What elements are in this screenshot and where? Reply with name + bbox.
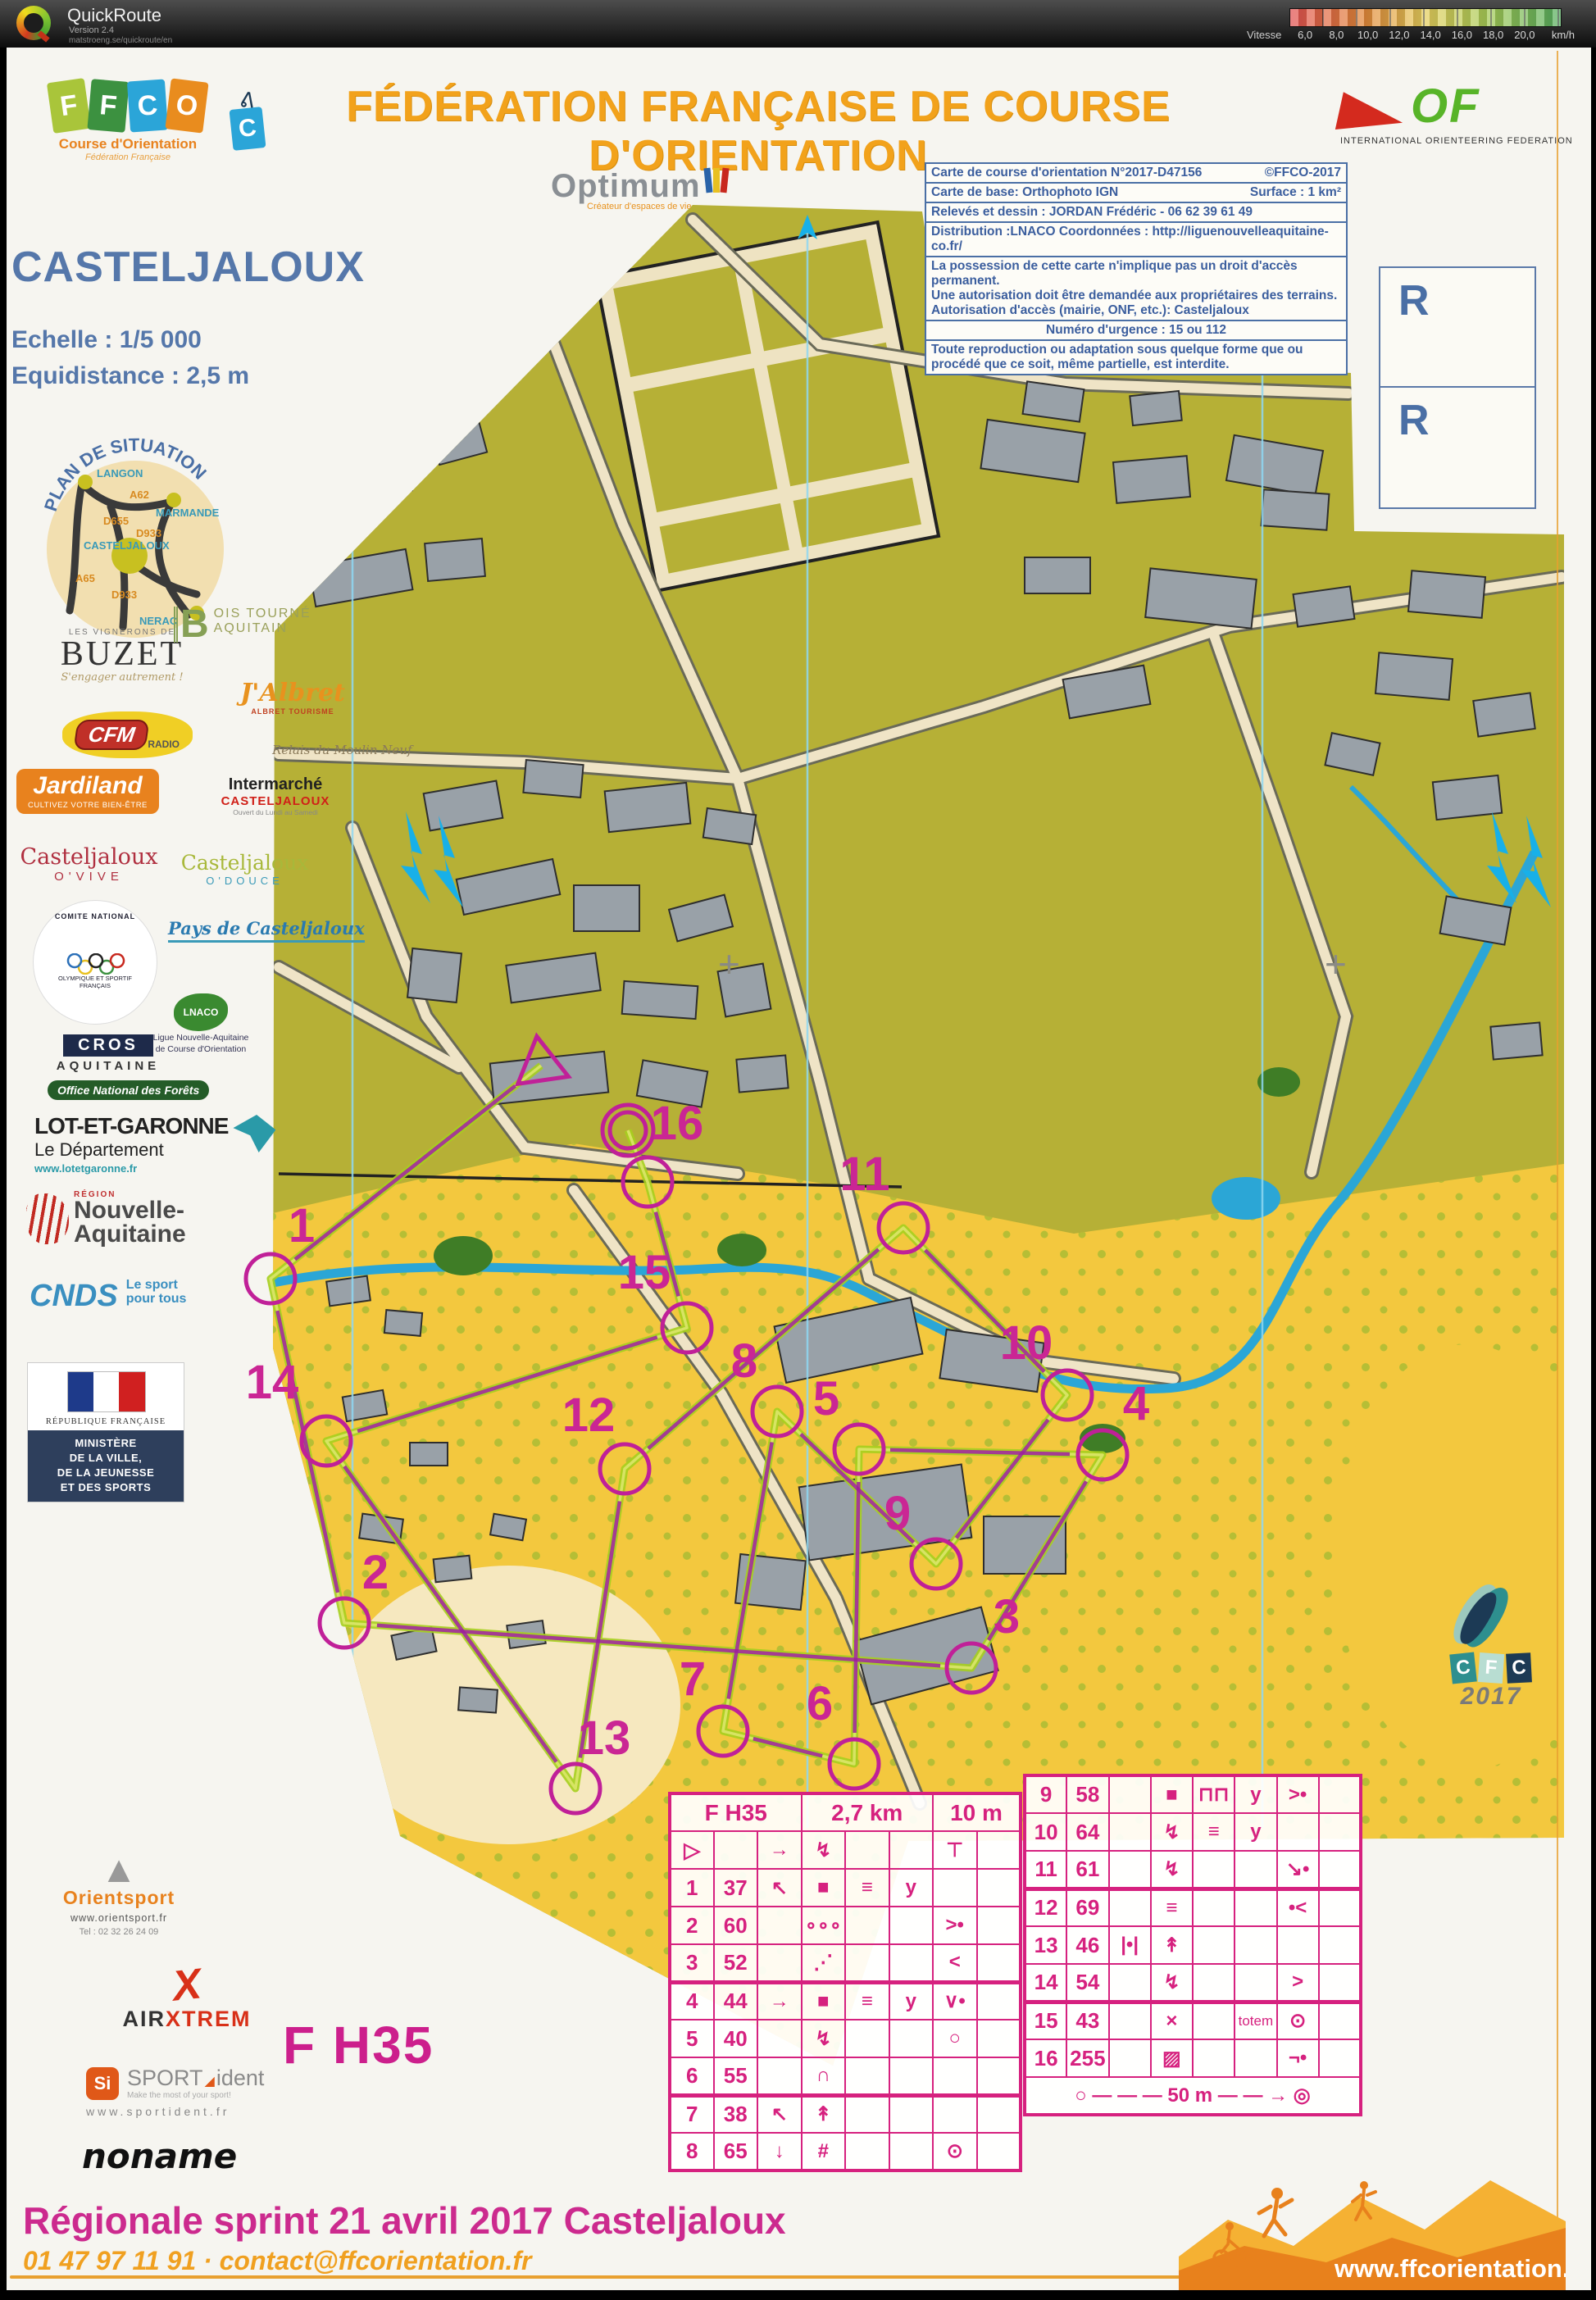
control-cell	[845, 2095, 889, 2133]
sponsor-line: COMITE NATIONAL	[34, 912, 157, 920]
control-cell	[977, 1982, 1021, 2020]
ffco-footer-banner: www.ffcorientation.fr	[1179, 2121, 1566, 2290]
sponsor-orientsport: Orientsportwww.orientsport.frTel : 02 32…	[45, 1854, 193, 1937]
control-cell: →	[757, 1982, 802, 2020]
books-icon	[703, 168, 728, 197]
iof-swoosh-icon	[1335, 85, 1411, 130]
control-row: 137↖■≡y	[670, 1869, 1021, 1907]
control-cell: ▨	[1151, 2039, 1193, 2077]
ffco-caption: Course d'Orientation	[30, 136, 226, 152]
sponsor-line: Jardiland	[28, 774, 148, 798]
control-cell: →	[757, 1831, 802, 1869]
control-row: ▷→↯⊤	[670, 1831, 1021, 1869]
svg-text:A65: A65	[75, 572, 95, 584]
control-cell: 69	[1066, 1889, 1108, 1926]
control-row: 958■⊓⊓y>•	[1025, 1775, 1361, 1813]
sponsor-line: ALBRET TOURISME	[231, 707, 354, 716]
control-cell: ○	[933, 2020, 977, 2057]
control-cell	[757, 1944, 802, 1982]
control-row: 16255▨¬•	[1025, 2039, 1361, 2077]
control-description-table-left: F H352,7 km10 m▷→↯⊤137↖■≡y260∘∘∘>•352⋰<4…	[668, 1792, 1022, 2172]
control-cell: 255	[1066, 2039, 1108, 2077]
control-cell: 65	[714, 2133, 758, 2170]
control-cell	[1109, 2039, 1151, 2077]
control-cell	[1193, 1889, 1235, 1926]
control-cell	[933, 2057, 977, 2095]
svg-text:LANGON: LANGON	[97, 467, 143, 480]
sponsor-line: Casteljaloux	[169, 851, 321, 875]
sponsor-dept: LOT-ET-GARONNELe Départementwww.lotetgar…	[34, 1113, 228, 1175]
sponsor-line: CASTELJALOUX	[177, 794, 374, 808]
control-cell: >•	[1277, 1775, 1319, 1813]
control-cell	[1277, 1813, 1319, 1851]
control-cell: 1	[670, 1869, 714, 1907]
control-row: 1161↯↘•	[1025, 1851, 1361, 1889]
sponsor-pays: Pays de Casteljaloux	[168, 918, 365, 943]
control-cell: 4	[670, 1982, 714, 2020]
speed-tick: 8,0	[1321, 29, 1352, 41]
control-cell	[977, 1907, 1021, 1944]
sponsor-cfm: CFMRADIO	[62, 711, 193, 758]
ffco-logo: FFCO Course d'Orientation Fédération Fra…	[30, 80, 226, 162]
control-cell	[1319, 1851, 1361, 1889]
sponsor-line: Aquitaine	[74, 1223, 186, 1247]
sponsor-line: Tel : 02 32 26 24 09	[45, 1927, 193, 1937]
control-cell	[1193, 1851, 1235, 1889]
sponsor-line: CFM	[73, 720, 150, 750]
control-row: 260∘∘∘>•	[670, 1907, 1021, 1944]
control-cell: 12	[1025, 1889, 1066, 1926]
control-cell	[1319, 2039, 1361, 2077]
runner-silhouettes-icon	[1430, 1578, 1553, 1653]
control-cell: ⋰	[802, 1944, 846, 1982]
control-cell	[845, 1944, 889, 1982]
sponsor-onf: Office National des Forêts	[48, 1080, 209, 1100]
sponsor-line: Ouvert du Lundi au Samedi	[177, 808, 374, 816]
control-cell: ↖	[757, 1869, 802, 1907]
sponsor-line: Relais du Moulin Neuf	[272, 743, 412, 757]
control-cell: ∘∘∘	[802, 1907, 846, 1944]
sponsor-line: CROS	[63, 1034, 153, 1057]
control-cell	[757, 2020, 802, 2057]
speed-tick: 6,0	[1289, 29, 1321, 41]
sponsor-line: SPORT	[127, 2066, 203, 2091]
sponsor-jardiland: JardilandCULTIVEZ VOTRE BIEN-ÊTRE	[16, 769, 159, 814]
control-cell: ↯	[1151, 1813, 1193, 1851]
app-site-url: matstroeng.se/quickroute/en	[69, 36, 172, 45]
control-row: 865↓#⊙	[670, 2133, 1021, 2170]
control-cell	[933, 1869, 977, 1907]
speed-tick: 16,0	[1446, 29, 1477, 41]
control-cell: ≡	[1193, 1813, 1235, 1851]
control-cell: ⊙	[933, 2133, 977, 2170]
speed-gradient-bar	[1289, 8, 1562, 27]
sponsor-line: Intermarché	[177, 775, 374, 794]
control-cell: y	[889, 1982, 934, 2020]
control-cell: •<	[1277, 1889, 1319, 1926]
control-cell: ■	[802, 1869, 846, 1907]
control-cell	[1319, 1775, 1361, 1813]
sponsor-moulin: Relais du Moulin Neuf	[272, 743, 412, 757]
control-cell: 6	[670, 2057, 714, 2095]
control-cell	[845, 2020, 889, 2057]
quickroute-logo-icon	[16, 6, 51, 40]
sponsor-region: RÉGIONNouvelle-Aquitaine	[26, 1190, 186, 1246]
control-cell: 3	[670, 1944, 714, 1982]
control-cell: 7	[670, 2095, 714, 2133]
control-cell	[889, 2095, 934, 2133]
svg-text:MARMANDE: MARMANDE	[156, 507, 220, 519]
control-cell	[933, 2095, 977, 2133]
control-cell: 38	[714, 2095, 758, 2133]
control-cell: ≡	[845, 1982, 889, 2020]
control-cell: totem	[1235, 2002, 1276, 2039]
sponsor-line: MINISTÈRE	[28, 1430, 184, 1451]
sponsor-line: Pays de Casteljaloux	[168, 918, 365, 943]
map-equidistance: Equidistance : 2,5 m	[11, 362, 249, 390]
contact-line: 01 47 97 11 91 · contact@ffcorientation.…	[23, 2246, 531, 2276]
svg-text:D655: D655	[103, 515, 129, 527]
control-cell	[977, 2133, 1021, 2170]
control-cell: ∨•	[933, 1982, 977, 2020]
control-cell	[1109, 1775, 1151, 1813]
control-row: 1346|•|↟	[1025, 1926, 1361, 1964]
control-cell: ⊙	[1277, 2002, 1319, 2039]
ffco-site-url: www.ffcorientation.fr	[1334, 2254, 1566, 2283]
control-cell	[845, 2057, 889, 2095]
control-cell: 8	[670, 2133, 714, 2170]
control-cell: 9	[1025, 1775, 1066, 1813]
speed-unit: km/h	[1540, 29, 1575, 41]
sponsor-line: noname	[82, 2136, 237, 2176]
quickroute-window: { "header": { "app_name": "QuickRoute", …	[0, 0, 1596, 2300]
control-cell: 40	[714, 2020, 758, 2057]
control-cell	[1193, 1926, 1235, 1964]
control-cell	[1319, 1813, 1361, 1851]
sponsor-line: LOT-ET-GARONNE	[34, 1113, 228, 1139]
control-cell	[977, 2095, 1021, 2133]
sponsor-line: DE LA VILLE,	[28, 1451, 184, 1466]
control-cell	[889, 1831, 934, 1869]
app-name: QuickRoute	[67, 5, 161, 26]
control-cell	[889, 2020, 934, 2057]
sponsor-line: ident	[203, 2066, 265, 2091]
control-cell: ■	[1151, 1775, 1193, 1813]
control-cell	[1319, 1964, 1361, 2002]
control-row: 1543×totem⊙	[1025, 2002, 1361, 2039]
control-cell	[1235, 1926, 1276, 1964]
control-cell	[757, 1907, 802, 1944]
control-cell: 10	[1025, 1813, 1066, 1851]
sponsor-line: Le Département	[34, 1139, 228, 1161]
sponsor-line: Casteljaloux	[13, 844, 165, 870]
sponsor-odouce: CasteljalouxO'DOUCE	[169, 851, 321, 887]
sponsor-line: AQUITAINE	[43, 1059, 174, 1073]
control-cell	[977, 1944, 1021, 1982]
sponsor-line: ET DES SPORTS	[28, 1480, 184, 1502]
sponsor-line: DE LA JEUNESSE	[28, 1466, 184, 1480]
control-cell: #	[802, 2133, 846, 2170]
control-cell	[845, 1831, 889, 1869]
control-cell: 43	[1066, 2002, 1108, 2039]
control-cell: 52	[714, 1944, 758, 1982]
svg-text:A62: A62	[130, 489, 149, 501]
control-row: 352⋰<	[670, 1944, 1021, 1982]
sponsor-airxtrem: AIRXTREM	[105, 1964, 269, 2032]
control-cell	[1109, 1851, 1151, 1889]
control-cell	[845, 1907, 889, 1944]
control-cell	[1319, 1889, 1361, 1926]
cfc-2017-logo: CFC 2017	[1430, 1578, 1553, 1711]
control-cell: F H35	[670, 1793, 802, 1831]
control-cell: ↘•	[1277, 1851, 1319, 1889]
sponsor-line: Orientsport	[45, 1887, 193, 1909]
sponsor-noname: noname	[82, 2136, 237, 2176]
svg-text:CASTELJALOUX: CASTELJALOUX	[84, 539, 170, 552]
sponsor-cros: CROSAQUITAINE	[43, 1034, 174, 1073]
control-cell: 15	[1025, 2002, 1066, 2039]
sponsor-line: LNACO	[174, 993, 229, 1031]
sponsor-line: S'engager autrement !	[44, 671, 200, 684]
control-cell	[757, 2057, 802, 2095]
control-cell: 5	[670, 2020, 714, 2057]
control-cell: 54	[1066, 1964, 1108, 2002]
control-cell: ↟	[1151, 1926, 1193, 1964]
control-cell: ↯	[1151, 1964, 1193, 2002]
control-cell: 14	[1025, 1964, 1066, 2002]
control-cell: 64	[1066, 1813, 1108, 1851]
control-cell	[1193, 2002, 1235, 2039]
map-name: CASTELJALOUX	[11, 243, 365, 292]
sponsor-line: O'VIVE	[13, 870, 165, 884]
control-cell: ▷	[670, 1831, 714, 1869]
control-cell	[845, 2133, 889, 2170]
control-cell: ⊤	[933, 1831, 977, 1869]
speed-legend: Vitesse 6,08,010,012,014,016,018,020,0km…	[1247, 5, 1575, 44]
control-cell: ¬•	[1277, 2039, 1319, 2077]
sponsor-line: OLYMPIQUE ET SPORTIF FRANÇAIS	[34, 975, 157, 989]
control-cell	[977, 1869, 1021, 1907]
control-cell: y	[889, 1869, 934, 1907]
control-cell	[1109, 1813, 1151, 1851]
control-cell: ≡	[1151, 1889, 1193, 1926]
control-cell	[977, 1831, 1021, 1869]
quickroute-header-bar: QuickRoute Version 2.4 matstroeng.se/qui…	[0, 0, 1596, 48]
sponsor-line: AIR	[123, 2007, 166, 2032]
control-cell	[1109, 2002, 1151, 2039]
sponsor-line: Make the most of your sport!	[127, 2091, 283, 2100]
event-title: Régionale sprint 21 avril 2017 Casteljal…	[23, 2198, 786, 2243]
sponsor-line: Office National des Forêts	[48, 1080, 209, 1100]
optimum-logo: Optimum Créateur d'espaces de vie	[551, 168, 728, 211]
sponsor-line: www.orientsport.fr	[45, 1912, 193, 1924]
control-cell: 44	[714, 1982, 758, 2020]
control-cell: >•	[933, 1907, 977, 1944]
sponsor-bois: BOIS TOURNÉAQUITAIN	[174, 607, 362, 643]
control-cell: y	[1235, 1775, 1276, 1813]
control-cell: 2,7 km	[802, 1793, 934, 1831]
sponsor-line: J'Albret	[231, 679, 354, 707]
control-cell	[1235, 1964, 1276, 2002]
control-cell: 37	[714, 1869, 758, 1907]
control-cell	[1109, 1889, 1151, 1926]
ffco-tiles: FFCO	[30, 80, 226, 131]
control-cell	[1319, 1926, 1361, 1964]
control-cell	[1109, 1964, 1151, 2002]
speed-tick: 18,0	[1478, 29, 1509, 41]
control-cell	[1193, 1964, 1235, 2002]
page-edge-line	[1557, 51, 1558, 2277]
control-cell: ↓	[757, 2133, 802, 2170]
control-cell: 60	[714, 1907, 758, 1944]
sponsor-line: O'DOUCE	[169, 875, 321, 887]
sponsor-albret: J'AlbretALBRET TOURISME	[231, 679, 354, 716]
control-cell: ≡	[845, 1869, 889, 1907]
svg-text:NERAC: NERAC	[139, 615, 178, 627]
course-class-label: F H35	[283, 2015, 434, 2075]
sponsor-ovive: CasteljalouxO'VIVE	[13, 844, 165, 884]
control-cell: ○ — — — 50 m — — → ◎	[1025, 2077, 1361, 2115]
sponsor-line: RADIO	[148, 739, 180, 750]
control-row: 444→■≡y∨•	[670, 1982, 1021, 2020]
control-cell: ↖	[757, 2095, 802, 2133]
sponsor-line: B	[174, 607, 209, 643]
control-cell	[1235, 1851, 1276, 1889]
control-cell	[889, 2057, 934, 2095]
sponsor-line: RÉPUBLIQUE FRANÇAISE	[28, 1417, 184, 1426]
control-row: 655∩	[670, 2057, 1021, 2095]
sponsor-cnds: CNDSLe sportpour tous	[30, 1279, 210, 1314]
control-cell: 61	[1066, 1851, 1108, 1889]
control-description-table-right: 958■⊓⊓y>•1064↯≡y1161↯↘•1269≡•<1346|•|↟14…	[1023, 1774, 1362, 2116]
control-cell	[889, 1907, 934, 1944]
speed-tick: 12,0	[1384, 29, 1415, 41]
control-cell: 55	[714, 2057, 758, 2095]
speed-tick: 14,0	[1415, 29, 1446, 41]
control-cell: ∩	[802, 2057, 846, 2095]
control-cell: 58	[1066, 1775, 1108, 1813]
sponsor-sportident: SPORTidentMake the most of your sport!ww…	[86, 2066, 283, 2118]
control-row: 1269≡•<	[1025, 1889, 1361, 1926]
control-row: 738↖↟	[670, 2095, 1021, 2133]
control-cell: ↯	[1151, 1851, 1193, 1889]
speed-tick-labels: Vitesse 6,08,010,012,014,016,018,020,0km…	[1247, 29, 1575, 41]
sponsor-line: www.sportident.fr	[86, 2105, 283, 2118]
control-cell	[977, 2057, 1021, 2095]
svg-text:D933: D933	[111, 589, 137, 601]
control-cell: 10 m	[933, 1793, 1021, 1831]
control-cell	[1277, 1926, 1319, 1964]
footer-rule	[10, 2275, 1182, 2279]
sponsor-line: CNDS	[30, 1279, 118, 1314]
sponsor-line: XTREM	[166, 2007, 252, 2032]
control-cell	[977, 2020, 1021, 2057]
sponsor-ministere: RÉPUBLIQUE FRANÇAISEMINISTÈREDE LA VILLE…	[27, 1362, 184, 1502]
control-cell	[714, 1831, 758, 1869]
control-cell: ■	[802, 1982, 846, 2020]
control-cell: >	[1277, 1964, 1319, 2002]
control-cell	[1319, 2002, 1361, 2039]
r-boxes: R R	[1379, 266, 1536, 509]
control-cell: |•|	[1109, 1926, 1151, 1964]
speed-tick: 20,0	[1509, 29, 1540, 41]
sponsor-cnosf: COMITE NATIONALOLYMPIQUE ET SPORTIF FRAN…	[33, 900, 157, 1025]
control-cell: ↯	[802, 2020, 846, 2057]
control-row: 1064↯≡y	[1025, 1813, 1361, 1851]
speed-tick: 10,0	[1353, 29, 1384, 41]
control-cell: ×	[1151, 2002, 1193, 2039]
control-cell	[1193, 2039, 1235, 2077]
control-cell	[889, 1944, 934, 1982]
map-scale: Echelle : 1/5 000	[11, 326, 202, 354]
control-cell: 2	[670, 1907, 714, 1944]
svg-text:D933: D933	[136, 527, 161, 539]
app-version: Version 2.4	[69, 25, 114, 35]
finish-row: ○ — — — 50 m — — → ◎	[1025, 2077, 1361, 2115]
control-cell: y	[1235, 1813, 1276, 1851]
control-cell: ⊓⊓	[1193, 1775, 1235, 1813]
control-cell	[889, 2133, 934, 2170]
map-info-box: Carte de course d'orientation N°2017-D47…	[925, 162, 1348, 375]
sponsor-line: CULTIVEZ VOTRE BIEN-ÊTRE	[28, 801, 148, 810]
club-logo: ᕕ C	[223, 92, 272, 149]
control-cell: <	[933, 1944, 977, 1982]
control-row: 540↯○	[670, 2020, 1021, 2057]
control-cell: 13	[1025, 1926, 1066, 1964]
sponsor-line: Nouvelle-	[74, 1199, 186, 1223]
control-cell: ↯	[802, 1831, 846, 1869]
control-cell: 46	[1066, 1926, 1108, 1964]
control-cell	[1235, 2039, 1276, 2077]
sponsor-line: www.lotetgaronne.fr	[34, 1162, 228, 1175]
sponsor-intermarche: IntermarchéCASTELJALOUXOuvert du Lundi a…	[177, 775, 374, 816]
control-cell: 16	[1025, 2039, 1066, 2077]
control-row: 1454↯>	[1025, 1964, 1361, 2002]
control-cell: ↟	[802, 2095, 846, 2133]
control-cell: 11	[1025, 1851, 1066, 1889]
control-cell	[1235, 1889, 1276, 1926]
